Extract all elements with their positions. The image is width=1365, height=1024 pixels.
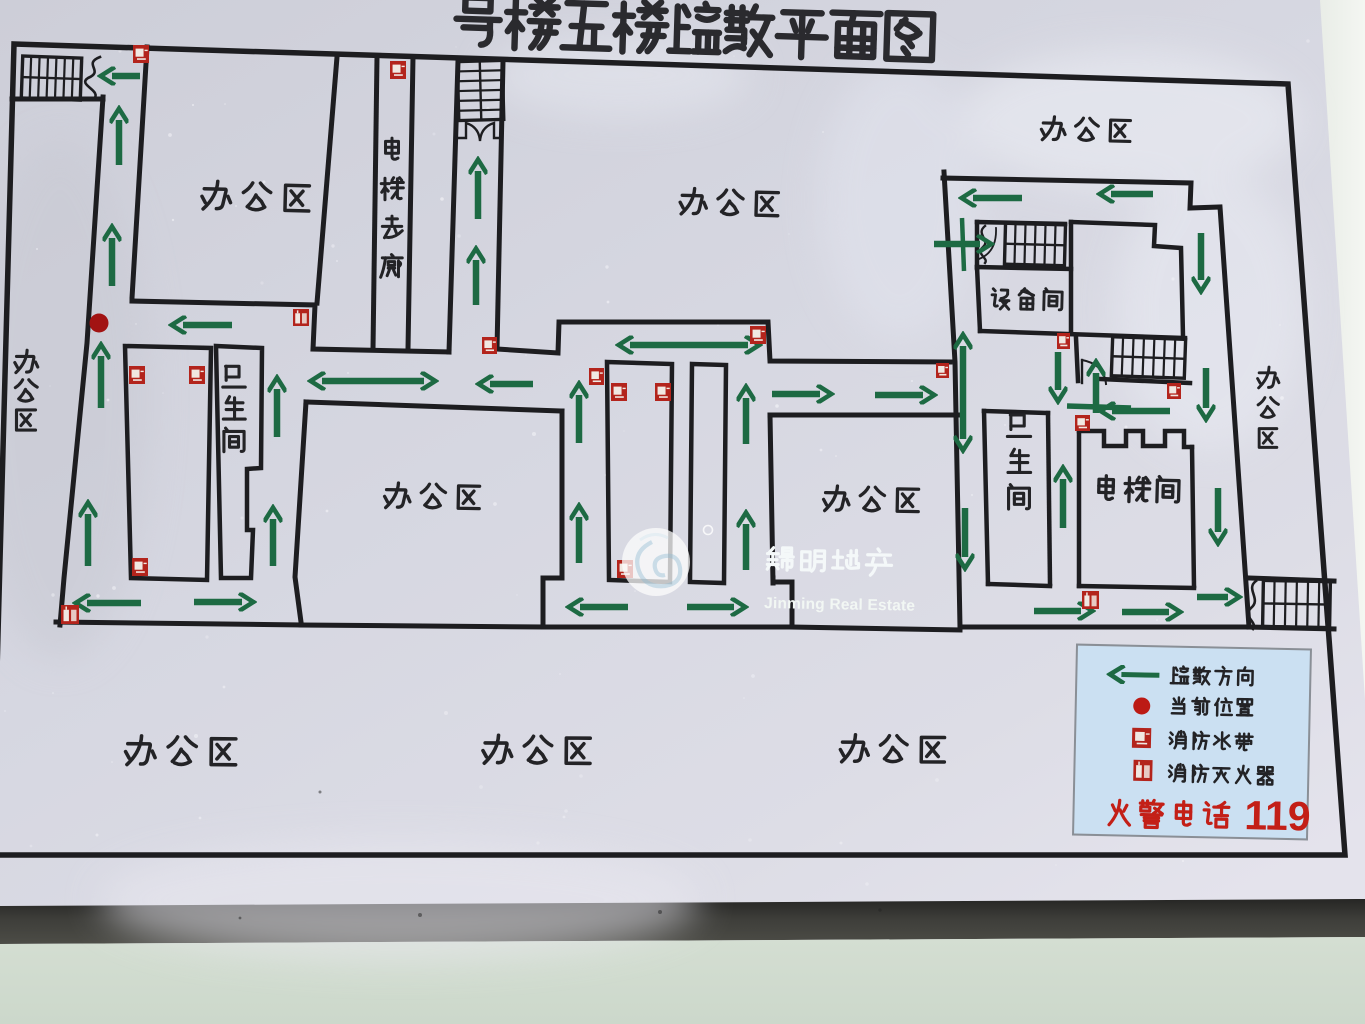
svg-text:119: 119 xyxy=(1244,792,1311,839)
svg-text:Jinming Real Estate: Jinming Real Estate xyxy=(764,595,916,615)
